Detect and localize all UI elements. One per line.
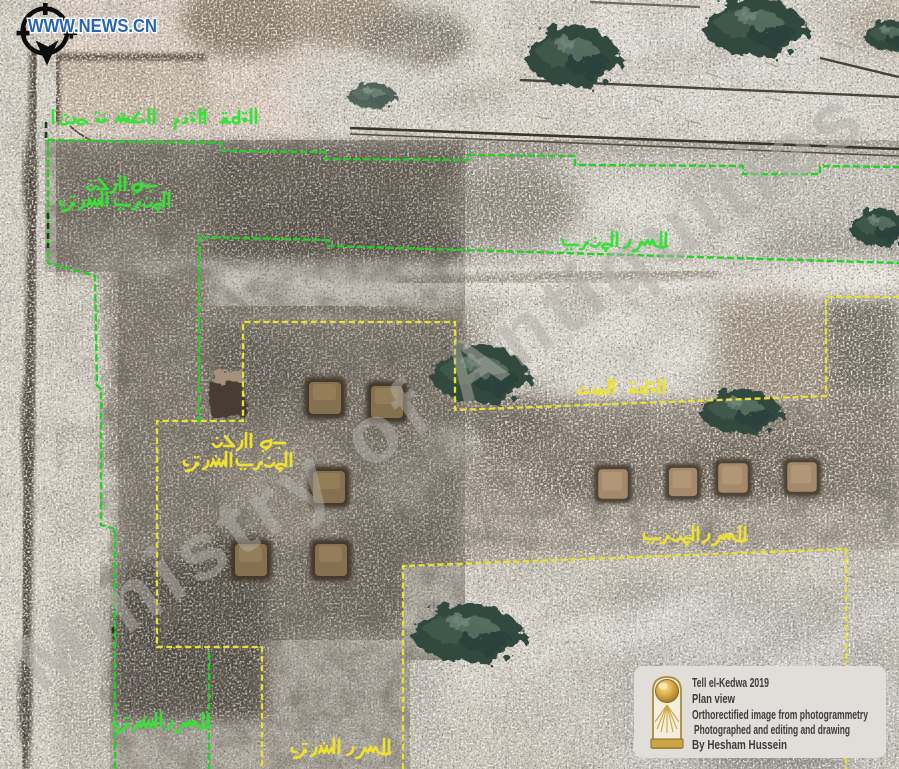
- svg-text:Orthorectified image from phot: Orthorectified image from photogrammetry: [692, 707, 868, 722]
- svg-text:Photographed and editing and d: Photographed and editing and drawing: [694, 722, 850, 737]
- svg-text:Tell el-Kedwa 2019: Tell el-Kedwa 2019: [692, 675, 769, 690]
- svg-text:WWW.NEWS.CN: WWW.NEWS.CN: [28, 16, 157, 36]
- svg-text:By Hesham Hussein: By Hesham Hussein: [692, 737, 787, 752]
- svg-text:Plan view: Plan view: [692, 691, 736, 706]
